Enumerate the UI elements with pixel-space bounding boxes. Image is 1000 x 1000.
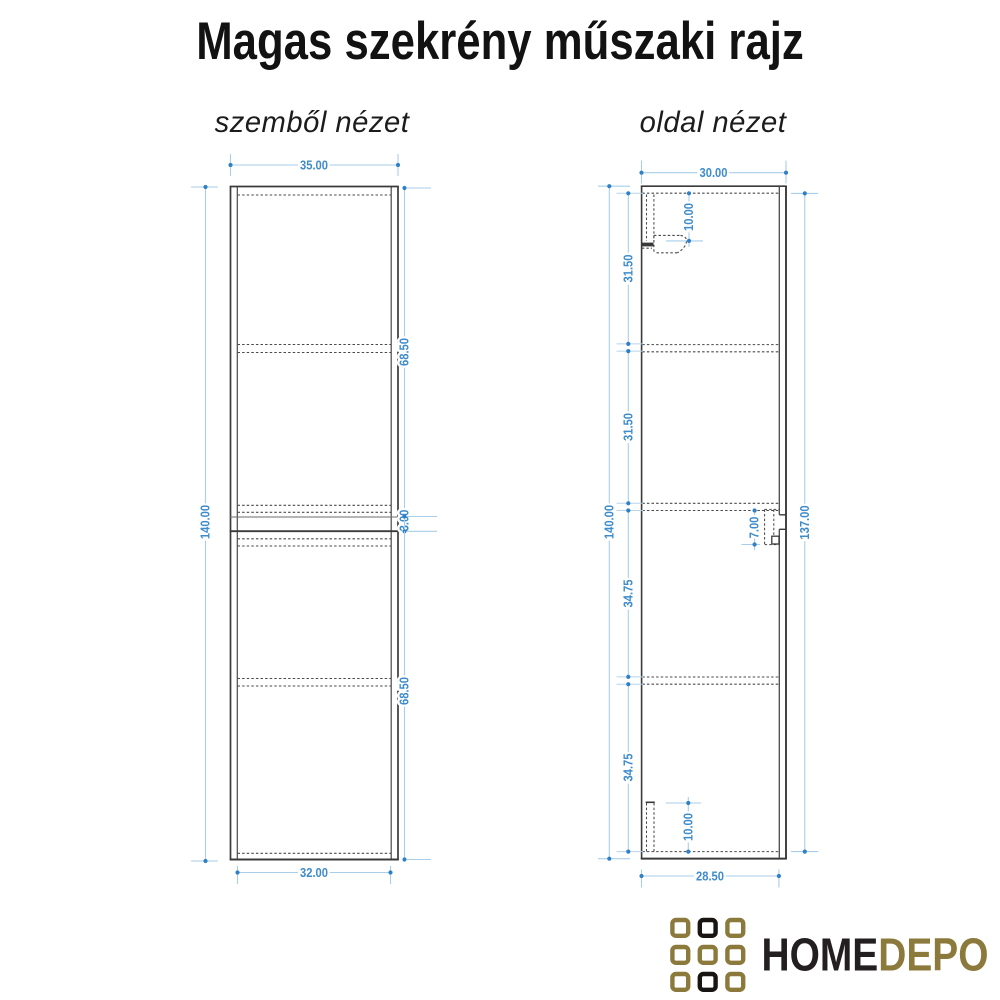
svg-text:140.00: 140.00: [198, 505, 213, 539]
svg-text:30.00: 30.00: [700, 165, 728, 180]
svg-text:140.00: 140.00: [602, 505, 617, 539]
svg-text:31.50: 31.50: [621, 413, 636, 441]
svg-text:10.00: 10.00: [681, 203, 696, 231]
svg-text:28.50: 28.50: [696, 869, 724, 884]
svg-text:32.00: 32.00: [300, 865, 328, 880]
svg-text:oldal nézet: oldal nézet: [640, 107, 788, 139]
svg-text:31.50: 31.50: [621, 254, 636, 282]
svg-text:137.00: 137.00: [797, 505, 812, 539]
svg-text:68.50: 68.50: [397, 677, 412, 705]
svg-text:34.75: 34.75: [621, 753, 636, 781]
svg-text:35.00: 35.00: [300, 158, 328, 173]
svg-text:szemből nézet: szemből nézet: [215, 107, 411, 139]
svg-text:10.00: 10.00: [681, 813, 696, 841]
svg-text:HOMEDEPO: HOMEDEPO: [762, 929, 989, 981]
svg-text:68.50: 68.50: [397, 338, 412, 366]
svg-text:Magas szekrény műszaki rajz: Magas szekrény műszaki rajz: [196, 12, 804, 71]
svg-text:7.00: 7.00: [747, 516, 762, 538]
svg-text:34.75: 34.75: [621, 579, 636, 607]
